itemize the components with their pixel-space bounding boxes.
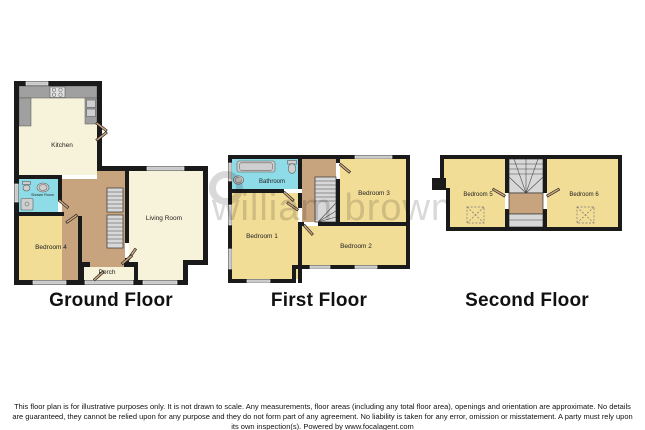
bedroom-3-label: Bedroom 3 (358, 190, 390, 197)
ground-floor-title: Ground Floor (14, 290, 208, 312)
basin-icon (37, 183, 49, 192)
first-floor-plan: Bathroom Bedroom 1 Bedroom 2 Bedroom 3 (228, 153, 410, 285)
porch-label: Porch (99, 269, 116, 276)
first-stairs-icon (315, 177, 336, 222)
stair-landing (509, 193, 543, 214)
bedroom-5-label: Bedroom 5 (463, 192, 493, 198)
second-floor-title: Second Floor (430, 290, 624, 312)
disclaimer: This floor plan is for illustrative purp… (0, 402, 645, 430)
living-room-label: Living Room (146, 215, 182, 222)
bath-icon (237, 161, 275, 172)
toilet-icon (288, 161, 297, 174)
ground-stairs-icon (107, 188, 123, 248)
bathroom-label: Bathroom (259, 179, 285, 185)
bedroom-2-label: Bedroom 2 (340, 243, 372, 250)
second-stairs-icon (509, 159, 543, 227)
basin-icon (233, 176, 243, 184)
shower-tray-icon (21, 199, 33, 211)
hob-icon (50, 87, 65, 98)
first-floor-title: First Floor (228, 290, 410, 312)
bedroom-1-label: Bedroom 1 (246, 233, 278, 240)
bedroom-6-label: Bedroom 6 (569, 192, 599, 198)
ground-floor-plan: Kitchen Shower Room Bedroom 4 Living Roo… (14, 81, 208, 287)
shower-room-label: Shower Room (31, 193, 54, 197)
second-floor-plan: Bedroom 5 Bedroom 6 (430, 153, 624, 235)
bedroom-4-label: Bedroom 4 (35, 244, 67, 251)
kitchen-label: Kitchen (51, 142, 73, 149)
floorplan-page: Kitchen Shower Room Bedroom 4 Living Roo… (0, 0, 645, 430)
disclaimer-text: This floor plan is for illustrative purp… (9, 402, 637, 430)
toilet-icon (23, 182, 31, 192)
